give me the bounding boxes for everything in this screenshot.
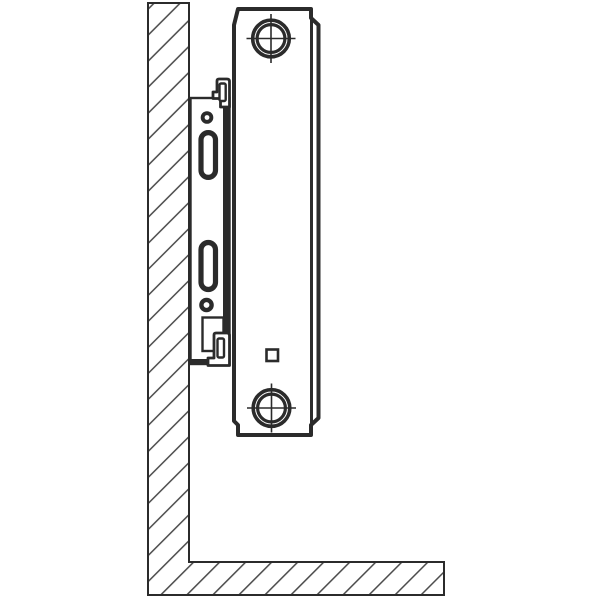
radiator: [234, 9, 319, 435]
drawing-canvas: Panel radiator wall-mounting bracket — s…: [0, 0, 600, 600]
upper-fixing-hole: [201, 111, 214, 124]
upper-adjustment-slot: [201, 133, 216, 178]
radiator-outline: [234, 9, 319, 435]
lower-adjustment-slot: [201, 243, 216, 290]
top-clip-slot: [220, 84, 226, 102]
mounting-bracket: [191, 79, 230, 366]
bottom-clip-slot: [218, 339, 225, 358]
vent-plug: [267, 350, 279, 362]
upper-hole-center: [205, 115, 210, 120]
technical-drawing: Panel radiator wall-mounting bracket — s…: [0, 0, 600, 600]
lower-hole-center: [204, 302, 210, 308]
lower-fixing-hole: [199, 298, 214, 313]
